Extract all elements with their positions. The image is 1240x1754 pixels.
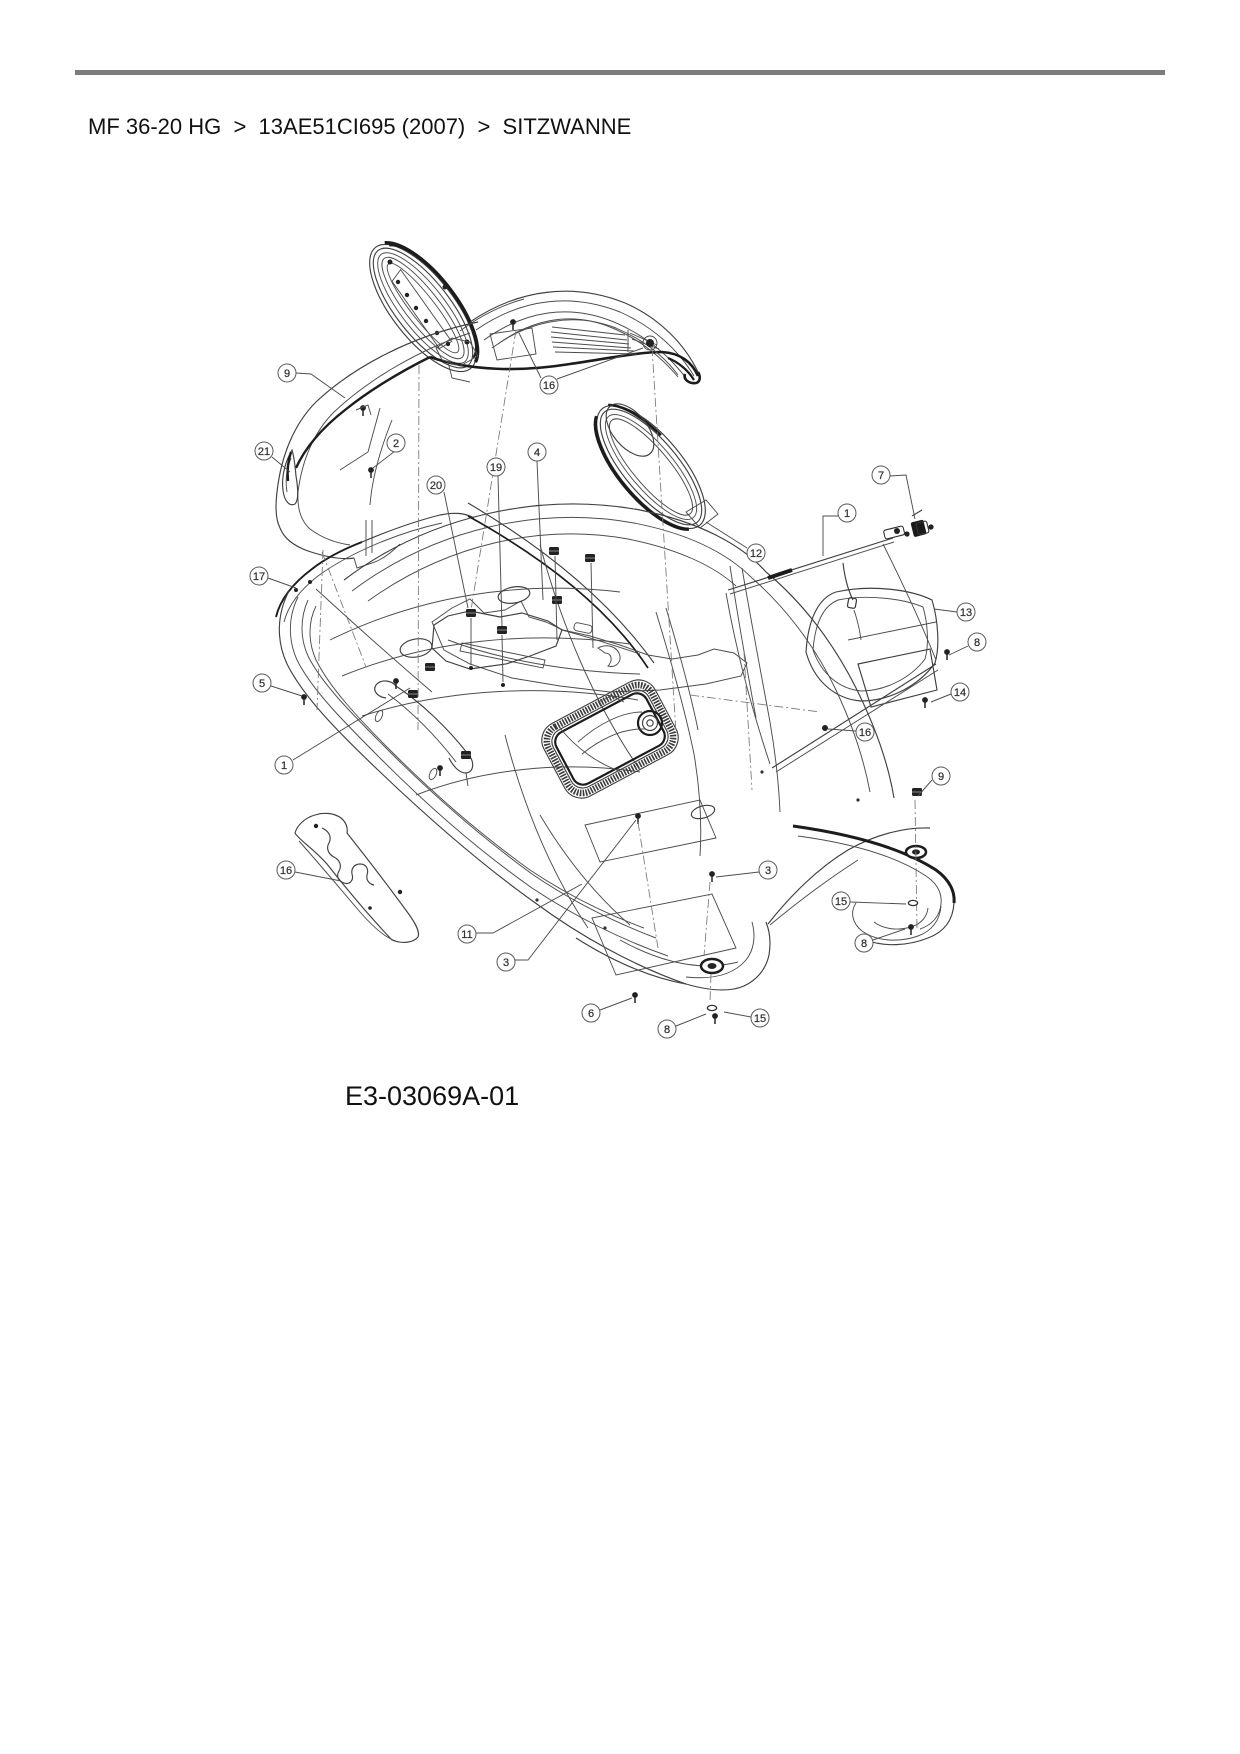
svg-text:16: 16 xyxy=(543,380,555,392)
svg-text:8: 8 xyxy=(664,1024,670,1036)
svg-text:16: 16 xyxy=(280,865,292,877)
svg-text:4: 4 xyxy=(534,447,540,459)
svg-text:19: 19 xyxy=(490,462,502,474)
svg-text:9: 9 xyxy=(284,368,290,380)
svg-text:17: 17 xyxy=(253,571,265,583)
svg-text:13: 13 xyxy=(960,607,972,619)
svg-text:E3-03069A-01: E3-03069A-01 xyxy=(345,1081,519,1111)
svg-text:9: 9 xyxy=(938,771,944,783)
svg-text:14: 14 xyxy=(954,687,966,699)
svg-text:12: 12 xyxy=(750,548,762,560)
svg-text:21: 21 xyxy=(258,446,270,458)
svg-text:20: 20 xyxy=(430,480,442,492)
svg-text:7: 7 xyxy=(878,470,884,482)
svg-text:2: 2 xyxy=(393,438,399,450)
svg-text:15: 15 xyxy=(754,1013,766,1025)
svg-text:5: 5 xyxy=(259,678,265,690)
svg-text:6: 6 xyxy=(588,1008,594,1020)
svg-text:3: 3 xyxy=(503,957,509,969)
svg-text:1: 1 xyxy=(844,508,850,520)
svg-text:8: 8 xyxy=(861,938,867,950)
svg-text:1: 1 xyxy=(281,760,287,772)
svg-text:3: 3 xyxy=(765,865,771,877)
svg-text:MF 36-20 HG > 13AE51CI695 (2: MF 36-20 HG > 13AE51CI695 (2007) > SITZW… xyxy=(88,114,631,139)
svg-text:11: 11 xyxy=(461,929,472,941)
svg-text:16: 16 xyxy=(859,727,871,739)
svg-text:8: 8 xyxy=(974,637,980,649)
svg-text:15: 15 xyxy=(835,896,847,908)
